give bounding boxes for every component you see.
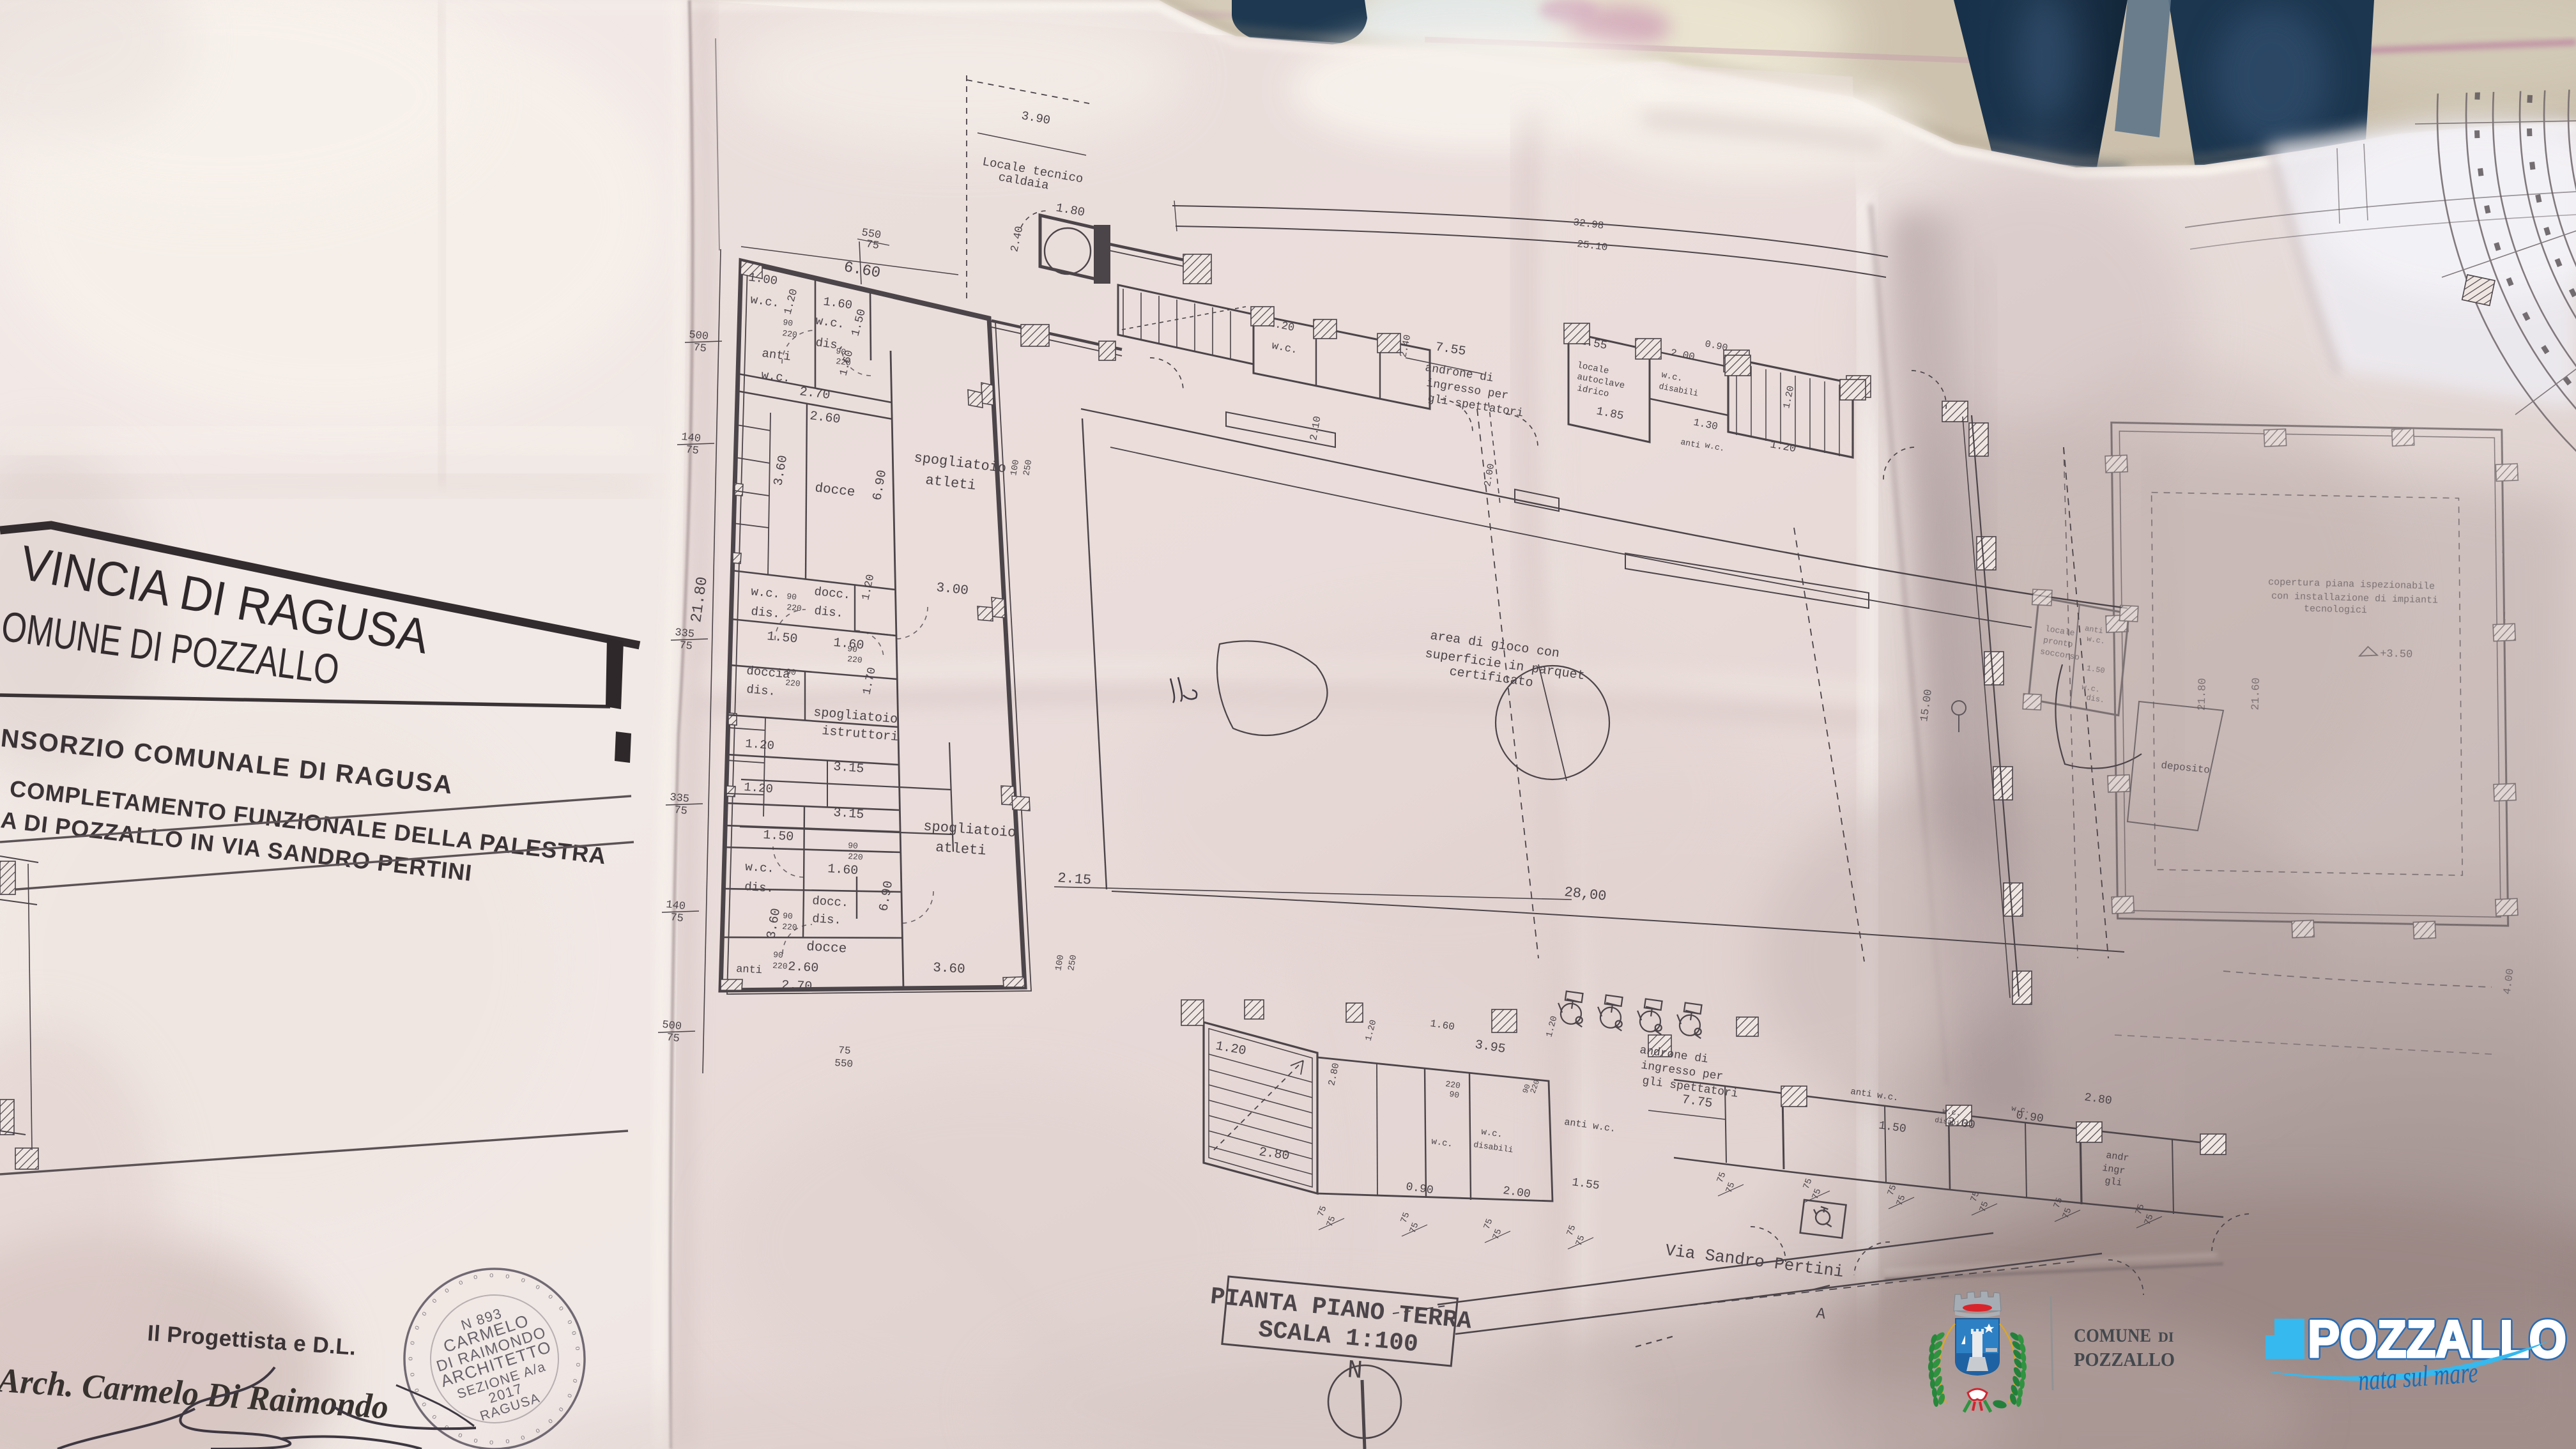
svg-text:o: o xyxy=(489,1439,494,1446)
svg-text:75: 75 xyxy=(693,342,707,355)
svg-text:1.20: 1.20 xyxy=(745,737,775,753)
svg-text:90: 90 xyxy=(773,950,783,960)
svg-text:75: 75 xyxy=(666,1032,680,1045)
svg-text:21.80: 21.80 xyxy=(2196,678,2209,710)
svg-text:75: 75 xyxy=(678,640,693,653)
svg-text:90: 90 xyxy=(786,592,797,602)
svg-text:2.15: 2.15 xyxy=(1057,870,1092,889)
svg-text:90: 90 xyxy=(782,318,793,328)
svg-text:1.50: 1.50 xyxy=(766,629,798,647)
svg-text:21.60: 21.60 xyxy=(2250,677,2263,710)
svg-text:90: 90 xyxy=(783,911,793,921)
svg-text:220: 220 xyxy=(847,654,863,665)
svg-text:dis.: dis. xyxy=(812,912,842,928)
svg-text:75: 75 xyxy=(685,444,699,457)
svg-text:docce: docce xyxy=(806,940,847,957)
svg-text:dis.: dis. xyxy=(750,604,781,621)
svg-text:1.20: 1.20 xyxy=(744,780,774,796)
svg-text:220: 220 xyxy=(782,922,797,932)
svg-text:220: 220 xyxy=(781,328,797,340)
svg-text:COMUNE: COMUNE xyxy=(2074,1325,2151,1346)
svg-text:2.60: 2.60 xyxy=(788,960,819,976)
svg-text:75: 75 xyxy=(670,912,684,925)
svg-text:o: o xyxy=(489,1271,494,1279)
svg-text:3.15: 3.15 xyxy=(832,760,864,777)
svg-text:w.c.: w.c. xyxy=(750,585,781,601)
svg-text:90: 90 xyxy=(847,644,858,654)
svg-text:550: 550 xyxy=(834,1057,854,1070)
svg-text:anti: anti xyxy=(736,963,763,977)
svg-text:140: 140 xyxy=(665,899,686,913)
svg-text:220: 220 xyxy=(786,602,802,613)
svg-text:90: 90 xyxy=(1448,1089,1460,1100)
svg-text:3.15: 3.15 xyxy=(832,806,864,822)
svg-text:500: 500 xyxy=(661,1019,682,1033)
svg-text:500: 500 xyxy=(688,329,709,343)
svg-text:1.60: 1.60 xyxy=(827,862,859,878)
svg-text:o: o xyxy=(574,1363,582,1367)
svg-text:o: o xyxy=(407,1357,415,1361)
svg-text:docc.: docc. xyxy=(812,894,849,910)
svg-text:220: 220 xyxy=(772,961,788,971)
svg-text:dis.: dis. xyxy=(813,604,844,620)
svg-text:220: 220 xyxy=(785,678,801,689)
svg-text:1.50: 1.50 xyxy=(763,828,795,845)
svg-text:2.70: 2.70 xyxy=(781,978,813,994)
svg-text:90: 90 xyxy=(848,841,859,851)
svg-text:75: 75 xyxy=(838,1045,851,1057)
svg-text:335: 335 xyxy=(674,627,694,641)
svg-text:DI: DI xyxy=(2158,1329,2173,1345)
svg-text:POZZALLO: POZZALLO xyxy=(2074,1348,2175,1370)
svg-text:3.60: 3.60 xyxy=(933,961,966,977)
svg-text:+3.50: +3.50 xyxy=(2380,648,2412,661)
svg-text:w.c.: w.c. xyxy=(745,860,775,876)
svg-text:140: 140 xyxy=(680,431,701,445)
svg-text:90: 90 xyxy=(786,667,797,677)
svg-text:dis.: dis. xyxy=(744,880,774,896)
svg-text:220: 220 xyxy=(835,356,851,368)
svg-text:dis.: dis. xyxy=(746,682,776,699)
svg-text:tecnologici: tecnologici xyxy=(2304,604,2367,617)
svg-text:90: 90 xyxy=(835,346,846,357)
svg-text:335: 335 xyxy=(669,792,689,806)
svg-text:220: 220 xyxy=(848,852,863,862)
svg-text:75: 75 xyxy=(673,804,687,818)
